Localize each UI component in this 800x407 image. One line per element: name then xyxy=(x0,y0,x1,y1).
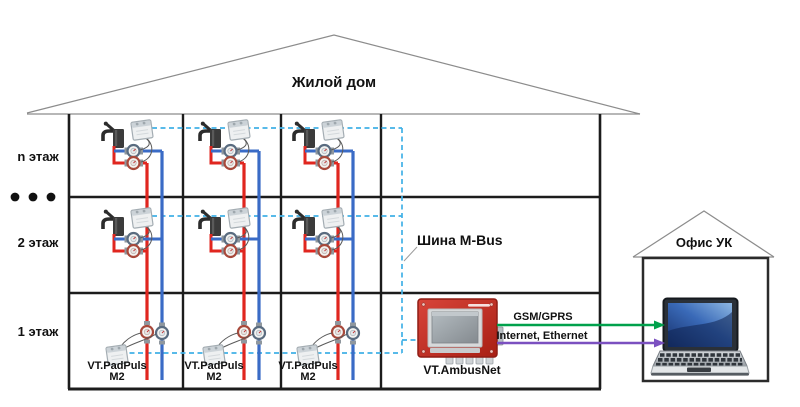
floor-label-1: 1 этаж xyxy=(12,324,64,339)
padpuls-model: M2 xyxy=(263,372,353,383)
water-risers xyxy=(147,151,353,380)
padpuls-label-1: VT.PadPuls M2 xyxy=(72,361,162,382)
cold-risers xyxy=(162,151,353,380)
metering-system-diagram: Жилой дом n этаж 2 этаж 1 этаж Шина M-Bu… xyxy=(0,0,800,407)
padpuls-model: M2 xyxy=(169,372,259,383)
padpuls-name: VT.PadPuls xyxy=(263,361,353,372)
padpuls-label-2: VT.PadPuls M2 xyxy=(169,361,259,382)
gsm-link-label: GSM/GPRS xyxy=(513,311,572,323)
gateway-brand-mark xyxy=(468,304,490,307)
floor1-riser-meters xyxy=(141,321,359,345)
gateway-screen xyxy=(432,312,478,343)
padpuls-label-3: VT.PadPuls M2 xyxy=(263,361,353,382)
ethernet-link-label: Internet, Ethernet xyxy=(496,330,587,342)
padpuls-name: VT.PadPuls xyxy=(72,361,162,372)
mbus-bus-lines xyxy=(121,128,417,353)
diagram-canvas xyxy=(0,0,800,407)
floor-label-n: n этаж xyxy=(12,149,64,164)
gateway-keys-strip xyxy=(430,348,480,353)
padpuls-name: VT.PadPuls xyxy=(169,361,259,372)
gateway-label: VT.AmbusNet xyxy=(423,363,500,377)
office-roof xyxy=(633,211,774,257)
building-title: Жилой дом xyxy=(292,74,376,91)
gateway-device-icon xyxy=(418,299,503,364)
office-label: Офис УК xyxy=(676,235,732,250)
bus-label-callout xyxy=(404,247,417,261)
floor-label-2: 2 этаж xyxy=(12,235,64,250)
laptop-icon xyxy=(651,299,749,376)
laptop-touchpad xyxy=(687,368,711,373)
mbus-label: Шина M-Bus xyxy=(417,232,503,248)
padpuls-model: M2 xyxy=(72,372,162,383)
ellipsis-dots-icon xyxy=(11,193,56,202)
